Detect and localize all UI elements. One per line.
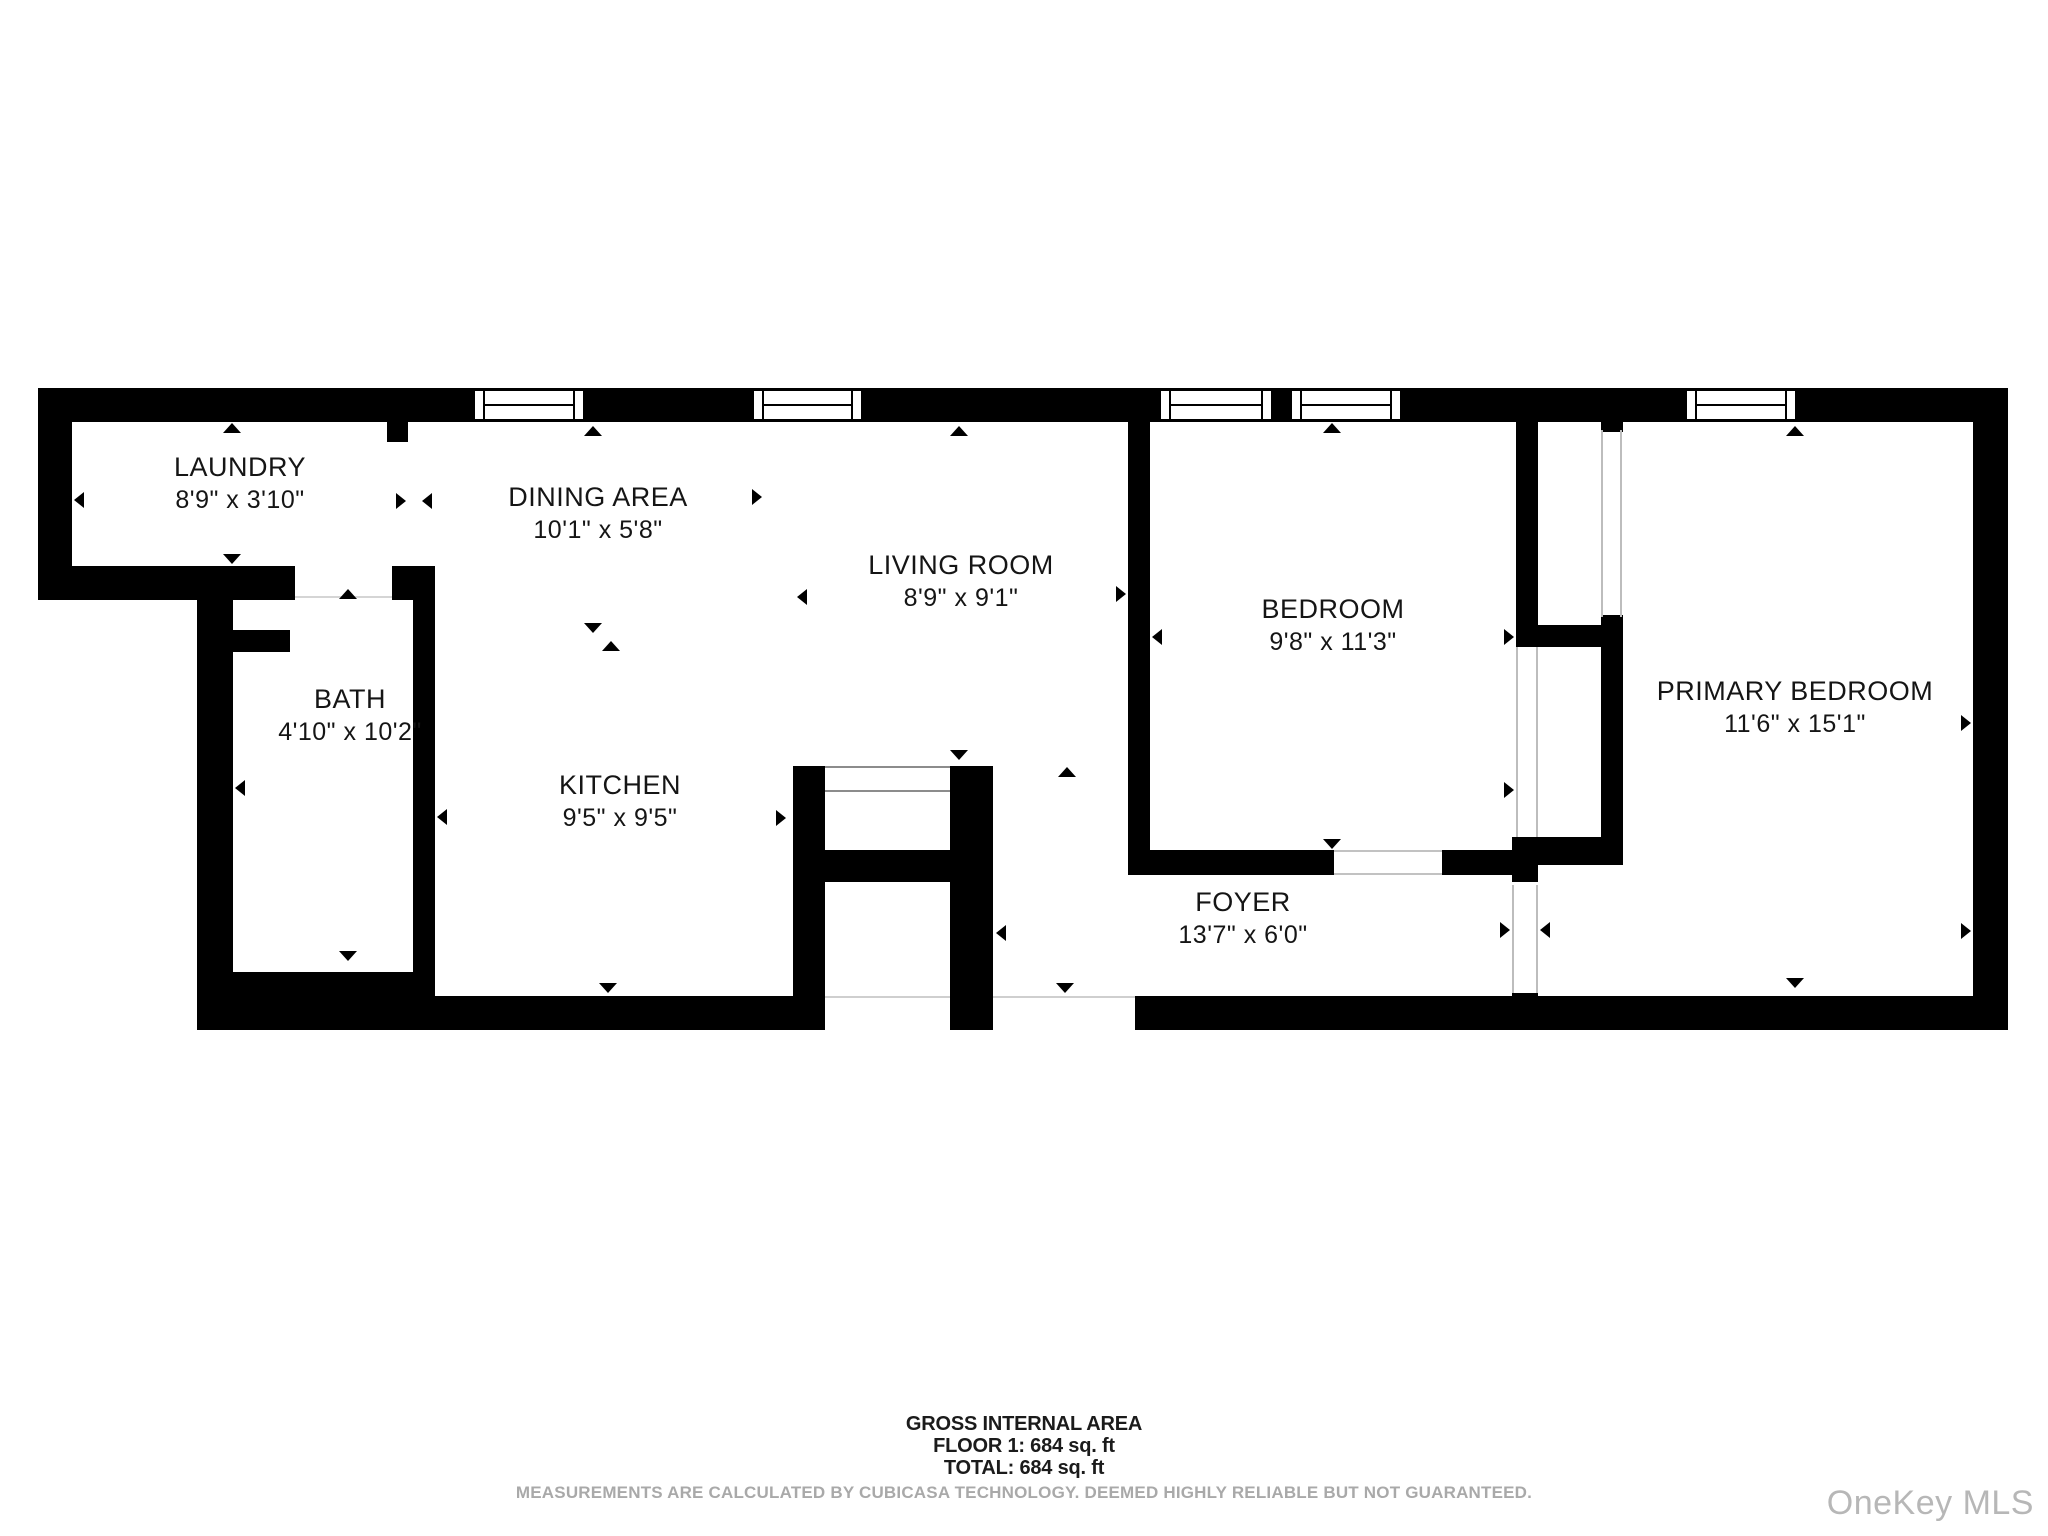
wall-laundry-bottom bbox=[38, 566, 295, 600]
window-glass-line bbox=[764, 404, 851, 406]
room-name: LIVING ROOM bbox=[781, 549, 1141, 582]
room-dims: 13'7" x 6'0" bbox=[1063, 919, 1423, 952]
door-vestibule-top bbox=[825, 766, 950, 792]
door-gap-main-entry bbox=[825, 996, 950, 1030]
wall-bedroom-bottom-left bbox=[1128, 850, 1334, 875]
measure-arrow-down bbox=[599, 983, 617, 993]
wall-vestibule-right bbox=[950, 766, 993, 1030]
window-frame-line bbox=[1261, 391, 1263, 419]
room-dims: 9'5" x 9'5" bbox=[440, 802, 800, 835]
window-frame-line bbox=[1390, 391, 1392, 419]
room-label-bath: BATH 4'10" x 10'2" bbox=[170, 683, 530, 749]
measure-arrow-up bbox=[1786, 426, 1804, 436]
window-dining bbox=[473, 389, 585, 421]
room-label-living-room: LIVING ROOM 8'9" x 9'1" bbox=[781, 549, 1141, 615]
room-dims: 11'6" x 15'1" bbox=[1615, 708, 1975, 741]
measure-arrow-down bbox=[584, 623, 602, 633]
measure-arrow-up bbox=[584, 426, 602, 436]
window-glass-line bbox=[1171, 404, 1261, 406]
window-glass-line bbox=[1697, 404, 1785, 406]
measurement-disclaimer: MEASUREMENTS ARE CALCULATED BY CUBICASA … bbox=[0, 1483, 2048, 1503]
window-frame-line bbox=[851, 391, 853, 419]
closet-slide-track-left bbox=[1516, 647, 1518, 837]
measure-arrow-right bbox=[1961, 923, 1971, 939]
door-gap-bedroom bbox=[1334, 850, 1442, 875]
measure-arrow-up bbox=[1058, 767, 1076, 777]
floor-area-line: FLOOR 1: 684 sq. ft bbox=[0, 1435, 2048, 1457]
room-dims: 8'9" x 9'1" bbox=[781, 582, 1141, 615]
wall-bath-inner-stub bbox=[233, 630, 290, 652]
window-glass-line bbox=[1302, 404, 1390, 406]
room-label-bedroom: BEDROOM 9'8" x 11'3" bbox=[1153, 593, 1513, 659]
wall-vestibule-mid bbox=[793, 850, 993, 882]
window-bedroom-2 bbox=[1290, 389, 1402, 421]
room-dims: 4'10" x 10'2" bbox=[170, 716, 530, 749]
measure-arrow-down bbox=[1323, 839, 1341, 849]
footer-area-summary: GROSS INTERNAL AREA FLOOR 1: 684 sq. ft … bbox=[0, 1413, 2048, 1503]
window-frame-line bbox=[1785, 391, 1787, 419]
measure-arrow-up bbox=[1323, 423, 1341, 433]
room-name: PRIMARY BEDROOM bbox=[1615, 675, 1975, 708]
wall-bath-right-top bbox=[392, 566, 435, 600]
measure-arrow-left bbox=[1540, 922, 1550, 938]
foyer-primary-door-left bbox=[1512, 885, 1514, 993]
wall-bath-right bbox=[413, 600, 435, 1002]
room-dims: 10'1" x 5'8" bbox=[418, 514, 778, 547]
wall-bedroom-right bbox=[1516, 420, 1538, 647]
measure-arrow-down bbox=[950, 750, 968, 760]
room-name: DINING AREA bbox=[418, 481, 778, 514]
measure-arrow-down bbox=[1056, 983, 1074, 993]
room-name: KITCHEN bbox=[440, 769, 800, 802]
upper-closet-track-right bbox=[1620, 430, 1622, 617]
room-label-laundry: LAUNDRY 8'9" x 3'10" bbox=[60, 451, 420, 517]
room-label-primary-bedroom: PRIMARY BEDROOM 11'6" x 15'1" bbox=[1615, 675, 1975, 741]
room-name: BEDROOM bbox=[1153, 593, 1513, 626]
measure-arrow-right bbox=[1504, 782, 1514, 798]
measure-arrow-down bbox=[339, 951, 357, 961]
measure-arrow-right bbox=[1500, 922, 1510, 938]
measure-arrow-up bbox=[223, 423, 241, 433]
door-gap-foyer-entry bbox=[993, 996, 1135, 1030]
room-label-kitchen: KITCHEN 9'5" x 9'5" bbox=[440, 769, 800, 835]
room-name: FOYER bbox=[1063, 886, 1423, 919]
closet-slide-track-right bbox=[1536, 647, 1538, 837]
wall-foyer-door-bottom-stub bbox=[1512, 993, 1538, 1030]
measure-arrow-down bbox=[1786, 978, 1804, 988]
measure-arrow-up bbox=[339, 589, 357, 599]
measure-arrow-down bbox=[223, 554, 241, 564]
wall-right bbox=[1973, 388, 2008, 1030]
measure-arrow-up bbox=[602, 641, 620, 651]
gross-internal-area-title: GROSS INTERNAL AREA bbox=[0, 1413, 2048, 1435]
window-primary-bedroom bbox=[1685, 389, 1797, 421]
wall-living-bedroom bbox=[1128, 420, 1150, 875]
window-living bbox=[752, 389, 863, 421]
room-label-dining-area: DINING AREA 10'1" x 5'8" bbox=[418, 481, 778, 547]
window-glass-line bbox=[485, 404, 573, 406]
wall-foyer-door-top-stub bbox=[1512, 842, 1538, 882]
window-frame-line bbox=[573, 391, 575, 419]
measure-arrow-left bbox=[235, 780, 245, 796]
room-dims: 9'8" x 11'3" bbox=[1153, 626, 1513, 659]
onekey-mls-watermark: OneKey MLS bbox=[1827, 1484, 2034, 1523]
room-name: BATH bbox=[170, 683, 530, 716]
measure-arrow-left bbox=[996, 925, 1006, 941]
wall-bath-bottom bbox=[233, 972, 413, 1004]
measure-arrow-up bbox=[950, 426, 968, 436]
wall-bedroom-bottom-right bbox=[1442, 850, 1518, 875]
floor-plan-page: LAUNDRY 8'9" x 3'10" DINING AREA 10'1" x… bbox=[0, 0, 2048, 1536]
foyer-primary-door-right bbox=[1536, 885, 1538, 993]
room-label-foyer: FOYER 13'7" x 6'0" bbox=[1063, 886, 1423, 952]
wall-bath-left bbox=[197, 598, 233, 1030]
room-dims: 8'9" x 3'10" bbox=[60, 484, 420, 517]
window-bedroom-1 bbox=[1159, 389, 1273, 421]
room-name: LAUNDRY bbox=[60, 451, 420, 484]
total-area-line: TOTAL: 684 sq. ft bbox=[0, 1457, 2048, 1479]
wall-stub-laundry-dining bbox=[387, 420, 408, 442]
upper-closet-track-left bbox=[1601, 430, 1603, 617]
